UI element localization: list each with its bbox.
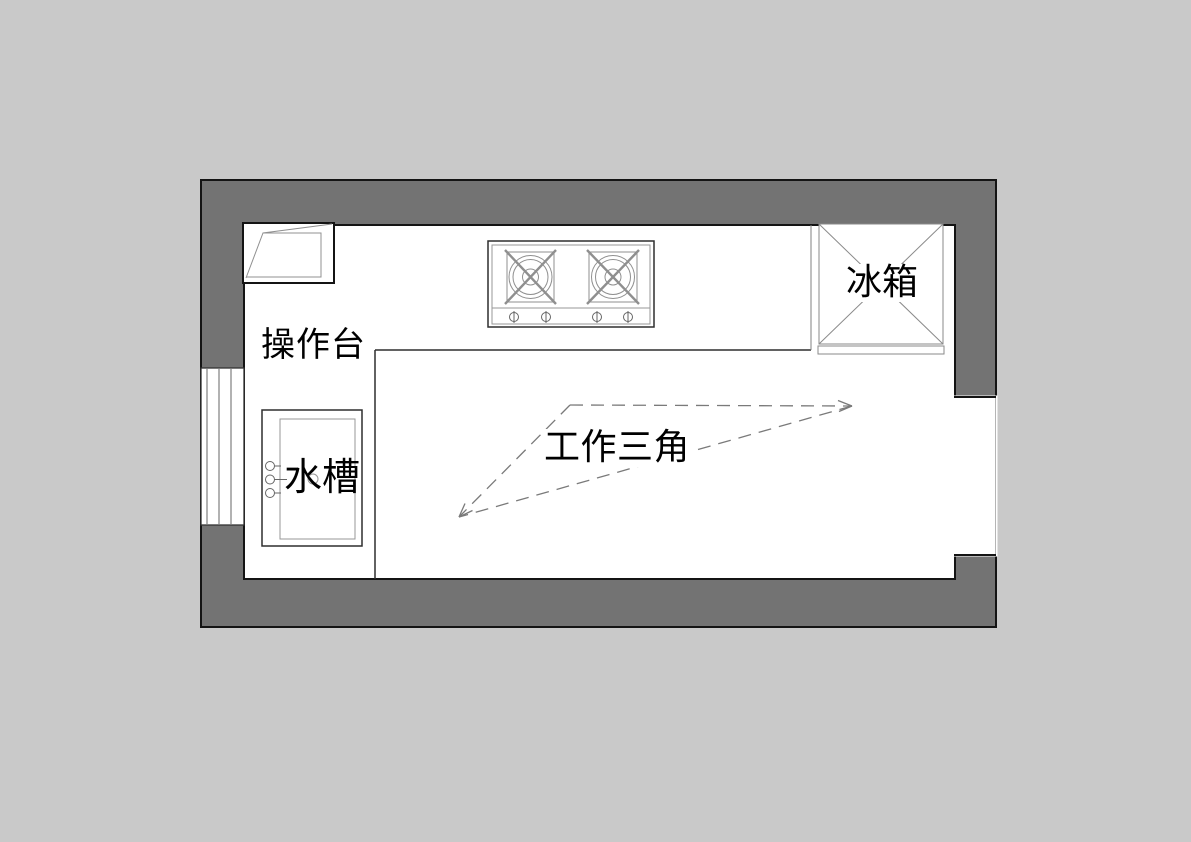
floor-plan-canvas: 操作台 水槽 冰箱 工作三角 <box>0 0 1191 842</box>
door-opening-icon <box>954 396 998 557</box>
sink-label: 水槽 <box>284 459 360 499</box>
corner-cabinet-icon <box>243 223 334 283</box>
work-triangle-label: 工作三角 <box>542 429 692 467</box>
countertop-label: 操作台 <box>261 328 366 364</box>
stove-icon <box>488 241 654 327</box>
plan-linework <box>0 0 1191 842</box>
window-icon <box>201 368 244 525</box>
fridge-label: 冰箱 <box>843 264 921 302</box>
